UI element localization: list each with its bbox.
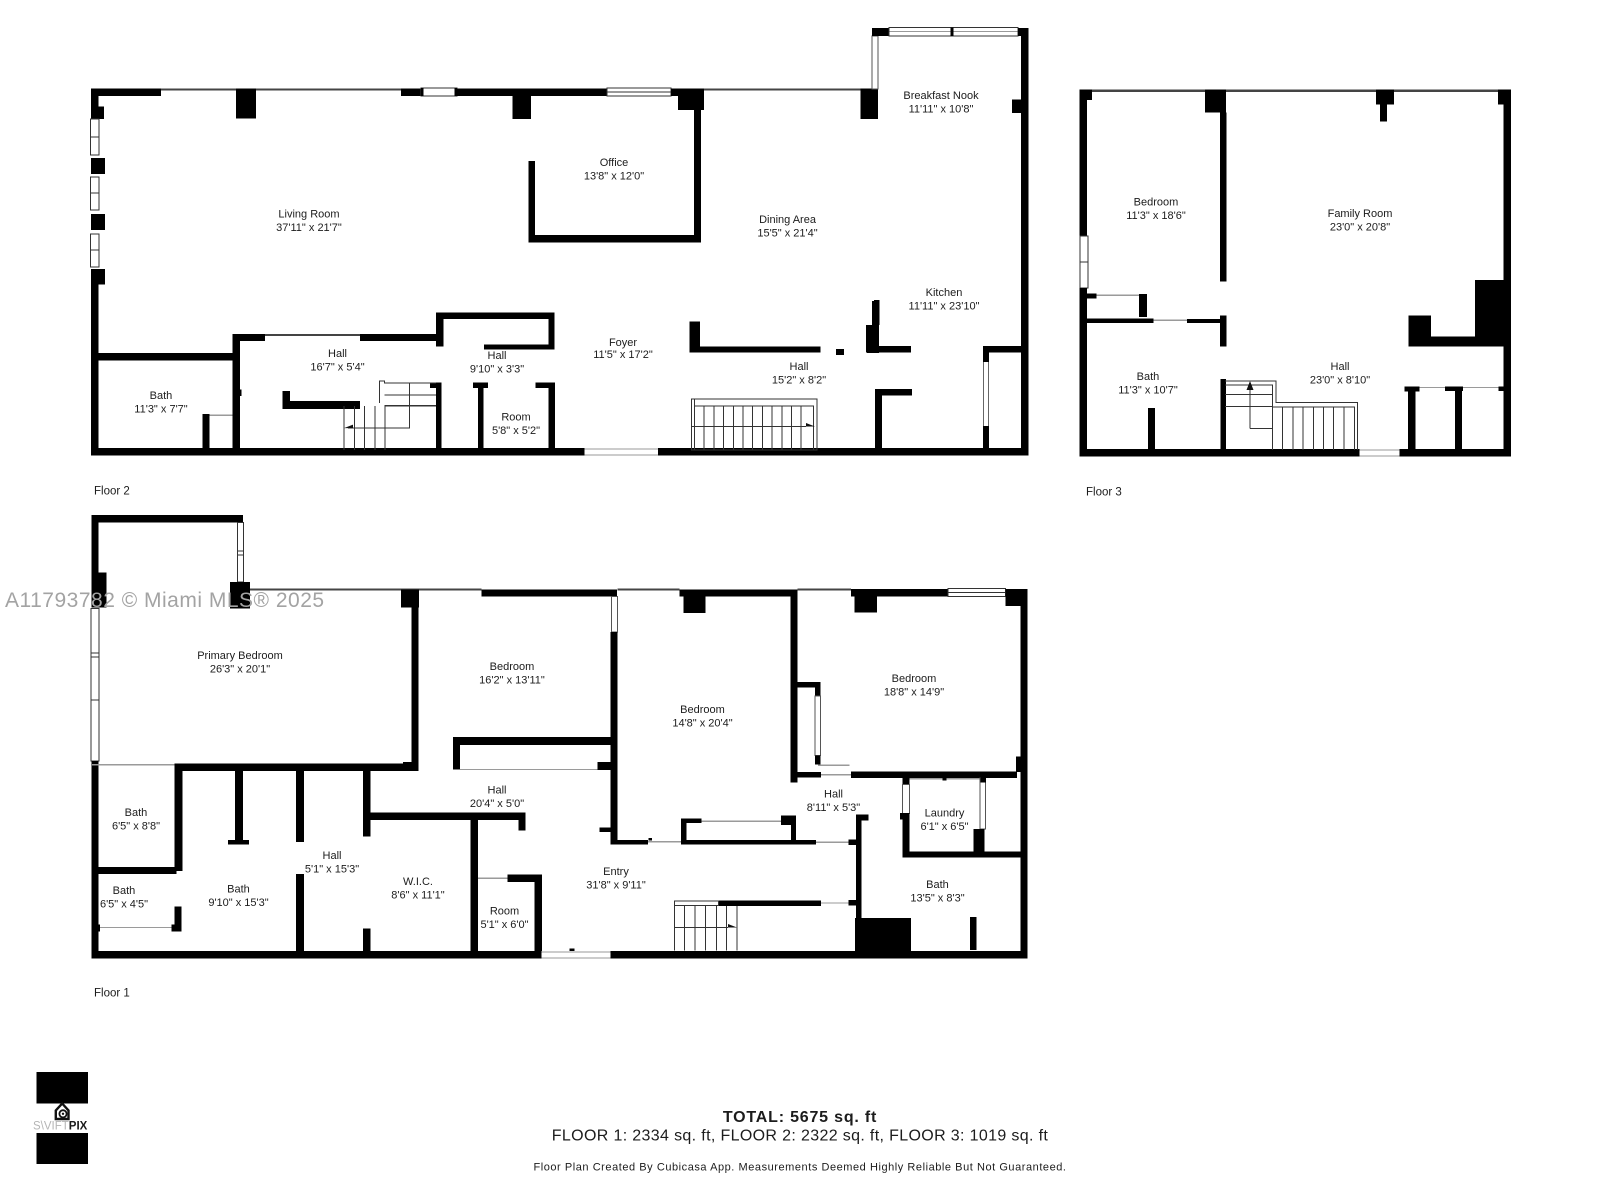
svg-text:Room: Room <box>490 906 519 918</box>
svg-text:Hall: Hall <box>1331 361 1350 373</box>
svg-text:FLOOR 1: 2334 sq. ft, FLOOR 2:: FLOOR 1: 2334 sq. ft, FLOOR 2: 2322 sq. … <box>552 1128 1049 1145</box>
svg-text:16'2" x 13'11": 16'2" x 13'11" <box>479 675 545 687</box>
svg-text:Entry: Entry <box>603 866 629 878</box>
svg-text:Bedroom: Bedroom <box>892 673 937 685</box>
svg-text:9'10" x 15'3": 9'10" x 15'3" <box>208 897 268 909</box>
svg-text:Laundry: Laundry <box>925 808 965 820</box>
svg-text:11'11" x 10'8": 11'11" x 10'8" <box>909 104 974 116</box>
svg-text:Bath: Bath <box>926 879 949 891</box>
svg-text:15'2" x 8'2": 15'2" x 8'2" <box>772 375 826 387</box>
svg-text:15'5" x 21'4": 15'5" x 21'4" <box>757 228 817 240</box>
svg-text:Foyer: Foyer <box>609 337 637 349</box>
svg-text:14'8" x 20'4": 14'8" x 20'4" <box>672 718 732 730</box>
svg-text:Hall: Hall <box>323 850 342 862</box>
svg-text:Floor 2: Floor 2 <box>94 486 130 498</box>
svg-text:Hall: Hall <box>488 785 507 797</box>
svg-text:8'11" x 5'3": 8'11" x 5'3" <box>807 802 860 814</box>
svg-text:Bath: Bath <box>150 390 173 402</box>
svg-text:Bath: Bath <box>1137 371 1160 383</box>
svg-text:37'11" x 21'7": 37'11" x 21'7" <box>276 222 342 234</box>
svg-text:Bedroom: Bedroom <box>680 704 725 716</box>
svg-text:Kitchen: Kitchen <box>926 287 963 299</box>
svg-text:Floor 1: Floor 1 <box>94 988 130 1000</box>
svg-text:5'1" x 6'0": 5'1" x 6'0" <box>480 919 528 931</box>
svg-text:Hall: Hall <box>790 361 809 373</box>
svg-text:Hall: Hall <box>328 348 347 360</box>
svg-text:11'3" x 18'6": 11'3" x 18'6" <box>1126 210 1186 222</box>
svg-text:6'5" x 8'8": 6'5" x 8'8" <box>112 821 160 833</box>
svg-text:11'3" x 7'7": 11'3" x 7'7" <box>134 404 187 416</box>
svg-text:23'0" x 20'8": 23'0" x 20'8" <box>1330 222 1390 234</box>
svg-text:16'7" x 5'4": 16'7" x 5'4" <box>310 362 364 374</box>
svg-text:Bath: Bath <box>113 885 136 897</box>
svg-text:18'8" x 14'9": 18'8" x 14'9" <box>884 687 944 699</box>
svg-text:A11793782 © Miami MLS® 2025: A11793782 © Miami MLS® 2025 <box>5 589 325 612</box>
svg-text:Hall: Hall <box>488 350 507 362</box>
svg-text:6'1" x 6'5": 6'1" x 6'5" <box>920 821 968 833</box>
svg-text:13'5" x 8'3": 13'5" x 8'3" <box>910 893 964 905</box>
svg-text:Office: Office <box>600 157 629 169</box>
svg-text:Floor Plan Created By Cubicasa: Floor Plan Created By Cubicasa App. Meas… <box>533 1162 1066 1174</box>
svg-text:Bath: Bath <box>125 807 148 819</box>
svg-text:20'4" x 5'0": 20'4" x 5'0" <box>470 798 524 810</box>
svg-text:11'5" x 17'2": 11'5" x 17'2" <box>593 349 653 361</box>
svg-text:5'8" x 5'2": 5'8" x 5'2" <box>492 425 540 437</box>
svg-text:Breakfast Nook: Breakfast Nook <box>903 90 979 102</box>
svg-text:8'6" x 11'1": 8'6" x 11'1" <box>391 890 444 902</box>
svg-text:Hall: Hall <box>824 789 843 801</box>
svg-text:13'8" x 12'0": 13'8" x 12'0" <box>584 171 644 183</box>
svg-text:Dining Area: Dining Area <box>759 214 817 226</box>
svg-text:W.I.C.: W.I.C. <box>403 876 433 888</box>
svg-text:26'3" x 20'1": 26'3" x 20'1" <box>210 664 270 676</box>
svg-text:S\VIFTPIX: S\VIFTPIX <box>33 1121 88 1133</box>
svg-text:Room: Room <box>501 412 530 424</box>
svg-text:31'8" x 9'11": 31'8" x 9'11" <box>586 880 646 892</box>
svg-text:Floor 3: Floor 3 <box>1086 487 1122 499</box>
svg-text:5'1" x 15'3": 5'1" x 15'3" <box>305 864 359 876</box>
svg-text:Bath: Bath <box>227 884 250 896</box>
svg-text:Primary Bedroom: Primary Bedroom <box>197 650 283 662</box>
svg-text:23'0" x 8'10": 23'0" x 8'10" <box>1310 375 1370 387</box>
svg-text:Bedroom: Bedroom <box>1134 197 1179 209</box>
svg-text:Family Room: Family Room <box>1328 208 1393 220</box>
svg-text:11'3" x 10'7": 11'3" x 10'7" <box>1118 385 1178 397</box>
svg-text:Living Room: Living Room <box>278 209 339 221</box>
svg-text:Bedroom: Bedroom <box>490 661 535 673</box>
svg-text:6'5" x 4'5": 6'5" x 4'5" <box>100 899 148 911</box>
svg-text:TOTAL: 5675 sq. ft: TOTAL: 5675 sq. ft <box>723 1109 877 1126</box>
svg-text:9'10" x 3'3": 9'10" x 3'3" <box>470 364 524 376</box>
svg-text:11'11" x 23'10": 11'11" x 23'10" <box>909 301 980 313</box>
